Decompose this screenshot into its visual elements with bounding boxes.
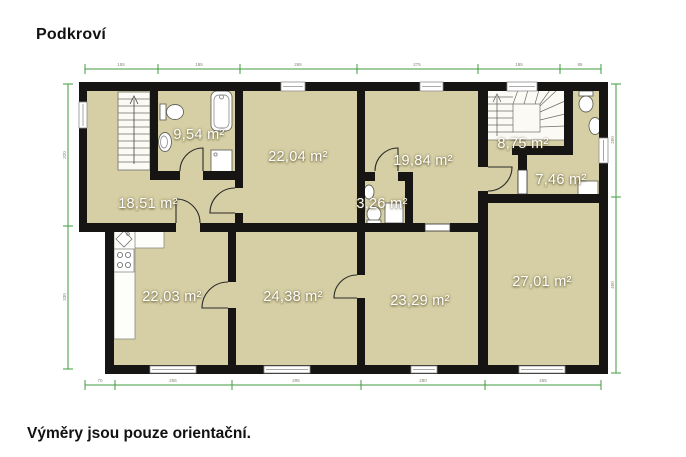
room-label-bathroom-left: 9,54 m² [173,127,224,143]
door-leaf [518,170,527,194]
dimension-label: 95 [577,62,583,67]
washing-machine-icon [211,150,232,173]
window [519,366,565,373]
window [507,82,537,91]
floorplan-drawing: 155 185 265 275 185 95 70 265 295 280 26… [0,0,686,457]
washbasin-icon [159,133,172,152]
room-label-kitchen: 22,03 m² [142,289,202,305]
dimension-label: 265 [294,62,302,67]
window [79,102,87,128]
room-label-room-top-right: 19,84 m² [393,153,453,169]
toilet-icon [160,104,184,120]
room-label-wc: 3,26 m² [356,196,407,212]
dimension-label: 330 [62,293,67,301]
window [420,82,443,91]
dimension-label: 400 [610,281,615,289]
dimension-label: 260 [610,136,615,144]
floorplan-page: Podkroví [0,0,686,457]
dimension-label: 280 [419,378,427,383]
room-label-room-bottom-right: 27,01 m² [512,274,572,290]
door-leaf [425,224,450,231]
room-label-room-top-center: 22,04 m² [268,149,328,165]
bathtub-icon [211,91,232,131]
room-label-staircase-room: 8,75 m² [497,136,548,152]
stairs-straight [118,92,150,170]
window [281,82,305,91]
room-label-room-bottom-left: 24,38 m² [263,289,323,305]
stairs-winder [485,90,565,140]
window [411,366,437,373]
dimension-label: 265 [539,378,547,383]
window [599,138,608,163]
window [150,366,196,373]
dimension-label: 265 [169,378,177,383]
dimension-label: 295 [292,378,300,383]
toilet-icon [579,91,593,112]
dimension-label: 185 [195,62,203,67]
room-label-room-bottom-center: 23,29 m² [390,293,450,309]
window [264,366,310,373]
dimension-label: 155 [117,62,125,67]
disclaimer-text: Výměry jsou pouze orientační. [27,425,251,443]
dimension-label: 320 [62,151,67,159]
stove-icon [114,249,134,272]
dimension-label: 275 [413,62,421,67]
dimension-label: 185 [515,62,523,67]
dimension-label: 70 [97,378,103,383]
room-label-hallway: 18,51 m² [118,196,178,212]
room-label-bathroom-right: 7,46 m² [535,172,586,188]
